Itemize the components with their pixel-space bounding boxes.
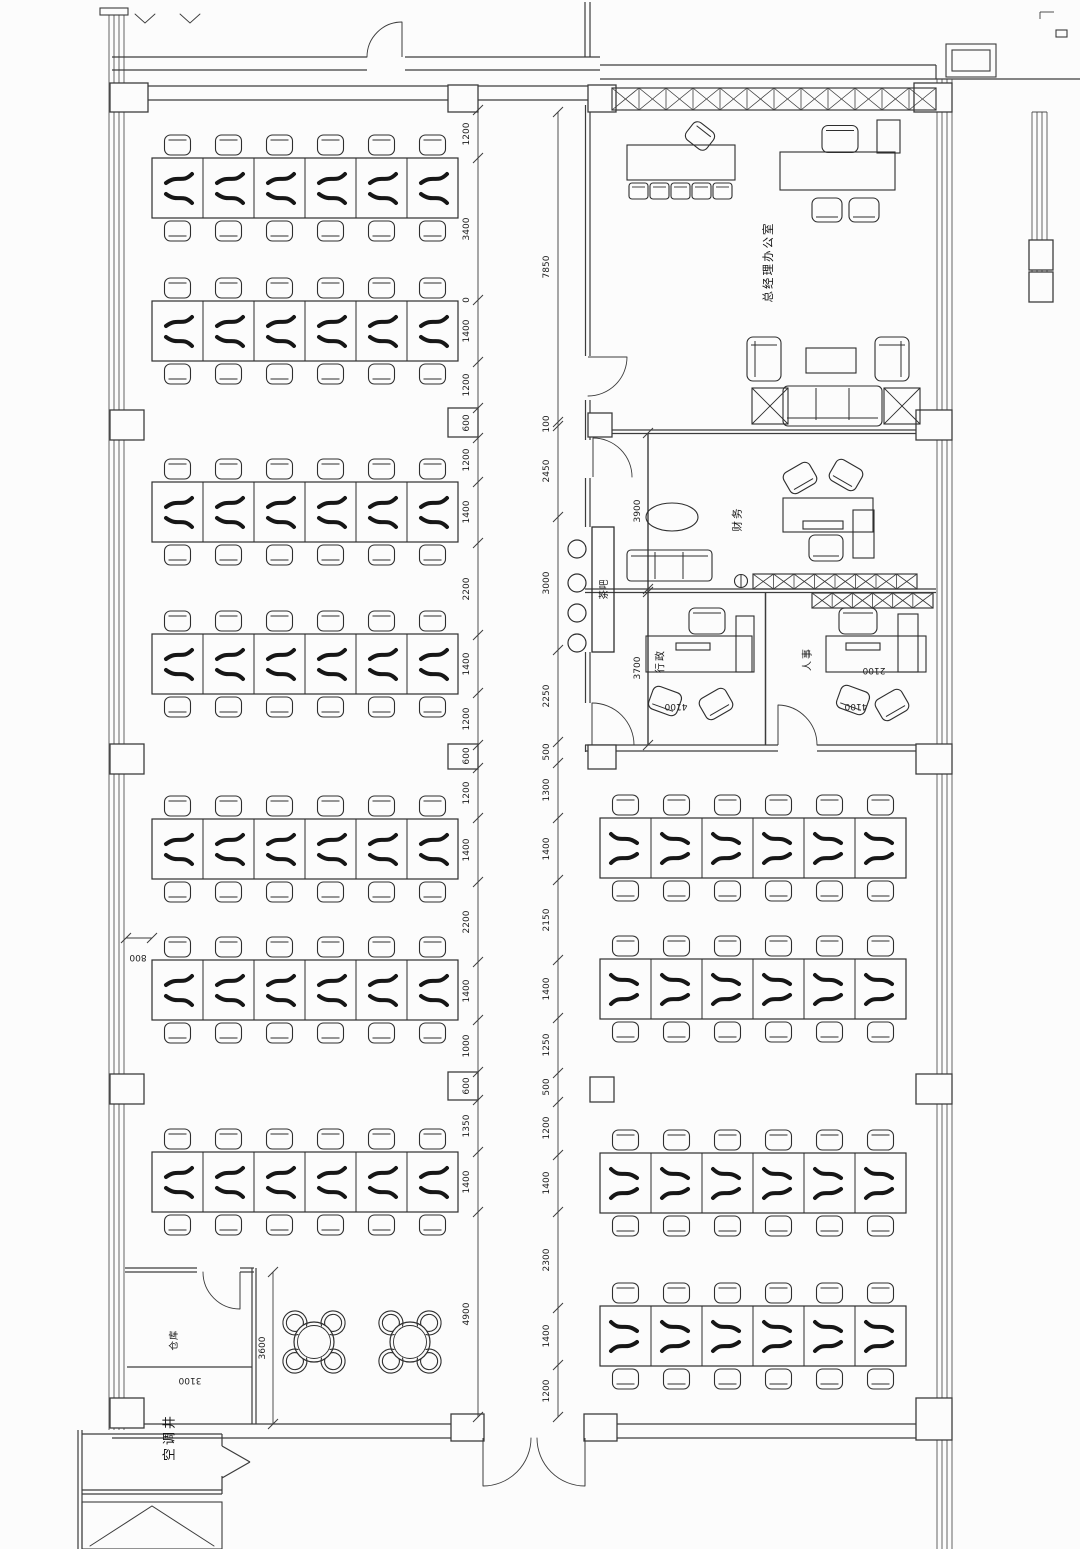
chair [766,936,792,956]
svg-text:1200: 1200 [542,1116,552,1139]
chair [165,459,191,479]
svg-text:1200: 1200 [462,122,472,145]
svg-text:2450: 2450 [542,459,552,482]
chair [318,278,344,298]
desk-cluster [600,1283,906,1389]
svg-text:600: 600 [462,1077,472,1094]
svg-text:3700: 3700 [633,656,643,679]
chair [267,278,293,298]
chair [817,1369,843,1389]
chair [827,457,865,493]
chair [817,1130,843,1150]
chair [664,1216,690,1236]
chair [165,545,191,565]
svg-text:4900: 4900 [462,1302,472,1325]
chair [369,882,395,902]
chair [216,1023,242,1043]
chair [868,936,894,956]
chair [318,221,344,241]
chair [715,1130,741,1150]
chair [165,1129,191,1149]
stool [568,634,586,652]
label-gm-office: 总经理办公室 [760,222,776,303]
svg-text:3000: 3000 [542,571,552,594]
chair [613,1216,639,1236]
chair [165,221,191,241]
chair [165,796,191,816]
chair [715,1283,741,1303]
chair [369,1023,395,1043]
chair [369,1215,395,1235]
column [448,85,478,112]
column [588,745,616,769]
chair [420,221,446,241]
chair [267,611,293,631]
chair [613,795,639,815]
chair [369,611,395,631]
chair [420,882,446,902]
walls [78,2,1080,1549]
desk-cluster [600,936,906,1042]
chair [318,1215,344,1235]
chair [812,198,842,222]
svg-text:1400: 1400 [462,838,472,861]
chair [664,936,690,956]
svg-text:500: 500 [542,743,552,760]
chair [267,545,293,565]
chair [420,1129,446,1149]
chair [420,697,446,717]
chair [766,795,792,815]
stool [568,604,586,622]
svg-text:7850: 7850 [542,255,552,278]
chair [216,611,242,631]
chair [165,1023,191,1043]
chair [817,795,843,815]
chair [318,796,344,816]
chair [216,796,242,816]
stool [568,574,586,592]
chair [613,1022,639,1042]
chair [369,221,395,241]
chair [766,1283,792,1303]
chair [216,135,242,155]
chair [420,796,446,816]
chair [369,1129,395,1149]
chair [267,882,293,902]
chair [868,1283,894,1303]
svg-text:100: 100 [542,415,552,432]
chair [613,1130,639,1150]
column [110,744,144,774]
chair [369,459,395,479]
chair [664,881,690,901]
chair [165,364,191,384]
chair [369,135,395,155]
svg-text:2200: 2200 [462,910,472,933]
chair [873,687,911,723]
chair [318,1023,344,1043]
chair [766,881,792,901]
svg-text:2300: 2300 [542,1248,552,1271]
chair [868,795,894,815]
chair [267,937,293,957]
chair [613,936,639,956]
column [110,410,144,440]
column [1029,240,1053,270]
chair [420,459,446,479]
chair [420,545,446,565]
desk-cluster [152,1129,458,1235]
chair [165,135,191,155]
chair [420,611,446,631]
chair [715,936,741,956]
chair [165,278,191,298]
chair [216,1215,242,1235]
svg-text:1300: 1300 [542,778,552,801]
chair [267,459,293,479]
chair [420,278,446,298]
label-ac-shaft: 空调井 [159,1413,178,1461]
desk-cluster [152,796,458,902]
chair [715,1022,741,1042]
chair [318,937,344,957]
svg-text:1000: 1000 [462,1034,472,1057]
chair [369,278,395,298]
chair [817,936,843,956]
svg-text:3100: 3100 [178,1375,201,1385]
svg-text:1200: 1200 [462,781,472,804]
desk-cluster [600,795,906,901]
svg-text:2100: 2100 [862,665,885,675]
desk-cluster [600,1130,906,1236]
chair [267,697,293,717]
chair [267,221,293,241]
svg-text:1200: 1200 [462,707,472,730]
chair [369,545,395,565]
chair [613,881,639,901]
chair [766,1022,792,1042]
chair [697,686,735,722]
svg-text:1200: 1200 [462,448,472,471]
chair [715,881,741,901]
chair [420,364,446,384]
svg-text:600: 600 [462,747,472,764]
column [916,410,952,440]
desk-cluster [152,611,458,717]
chair [420,135,446,155]
chair [664,1283,690,1303]
chair [613,1369,639,1389]
chair [216,545,242,565]
column [1029,272,1053,302]
chair [715,795,741,815]
svg-text:1400: 1400 [462,979,472,1002]
chair [318,611,344,631]
svg-text:2200: 2200 [462,577,472,600]
chair [318,135,344,155]
svg-text:800: 800 [129,952,146,962]
svg-text:1400: 1400 [542,837,552,860]
svg-text:500: 500 [542,1078,552,1095]
chair [420,1215,446,1235]
chair [849,198,879,222]
chair [613,1283,639,1303]
chair [318,459,344,479]
chair [781,460,819,496]
column [110,1074,144,1104]
chair [868,881,894,901]
chair [817,1283,843,1303]
chair [216,221,242,241]
chair [216,882,242,902]
chair [318,882,344,902]
column [110,1398,144,1428]
round-tables [283,1311,441,1373]
chair [267,135,293,155]
svg-text:3900: 3900 [633,499,643,522]
chair [267,1023,293,1043]
label-tea-bar: 茶吧 [596,578,610,599]
svg-text:3600: 3600 [258,1336,268,1359]
svg-text:0: 0 [462,297,472,303]
desk-cluster [152,135,458,241]
chair [216,937,242,957]
chair [817,1022,843,1042]
svg-text:1350: 1350 [462,1114,472,1137]
svg-text:600: 600 [462,414,472,431]
floor-plan-svg: 1200340001400120060012001400220014001200… [0,0,1080,1549]
chair [267,1129,293,1149]
chair [664,1369,690,1389]
chair [689,608,725,634]
label-finance: 财务 [730,507,745,532]
svg-text:1400: 1400 [462,500,472,523]
chair [715,1216,741,1236]
desk-cluster [152,278,458,384]
chair [165,937,191,957]
chair [766,1369,792,1389]
column [588,413,612,437]
desk-cluster [152,459,458,565]
svg-text:1400: 1400 [542,1324,552,1347]
column [916,1074,952,1104]
doors [203,22,817,1486]
chair [817,1216,843,1236]
chair [216,1129,242,1149]
finance-furniture [627,457,874,587]
label-warehouse: 仓库 [166,1329,180,1350]
svg-text:1400: 1400 [462,652,472,675]
chair [165,611,191,631]
chair [318,697,344,717]
svg-text:2250: 2250 [542,684,552,707]
column [590,1077,614,1102]
svg-text:1400: 1400 [542,977,552,1000]
chair [868,1369,894,1389]
chair [165,882,191,902]
chair [647,685,683,718]
chair [766,1216,792,1236]
chair [817,881,843,901]
chair [318,545,344,565]
chair [369,796,395,816]
svg-text:1200: 1200 [542,1379,552,1402]
label-hr: 人事 [799,647,814,671]
chair [822,126,858,153]
chair [683,119,717,152]
chair [715,1369,741,1389]
workstation-clusters [152,135,906,1389]
chair [369,937,395,957]
chair [318,364,344,384]
chair [369,697,395,717]
chair [165,697,191,717]
svg-text:1400: 1400 [462,319,472,342]
chair [420,937,446,957]
desk-cluster [152,937,458,1043]
chair [216,278,242,298]
chair [216,459,242,479]
columns [110,83,1053,1441]
chair [165,1215,191,1235]
chair [664,1130,690,1150]
svg-text:1400: 1400 [542,1171,552,1194]
column [110,83,148,112]
svg-text:2150: 2150 [542,908,552,931]
column [451,1414,484,1441]
chair [216,697,242,717]
chair [420,1023,446,1043]
column [916,1398,952,1440]
svg-text:1400: 1400 [462,1170,472,1193]
chair [318,1129,344,1149]
chair [267,796,293,816]
chair [868,1216,894,1236]
floor-plan: 1200340001400120060012001400220014001200… [0,0,1080,1549]
svg-text:1200: 1200 [462,373,472,396]
label-admin: 行政 [652,649,667,673]
chair [809,535,843,561]
chair [369,364,395,384]
column [584,1414,617,1441]
chair [216,364,242,384]
chair [664,1022,690,1042]
chair [839,608,877,634]
chair [868,1130,894,1150]
chair [868,1022,894,1042]
chair [664,795,690,815]
chair [267,364,293,384]
column [916,744,952,774]
svg-text:1250: 1250 [542,1033,552,1056]
chair [267,1215,293,1235]
stool [568,540,586,558]
chair [766,1130,792,1150]
svg-text:3400: 3400 [462,217,472,240]
